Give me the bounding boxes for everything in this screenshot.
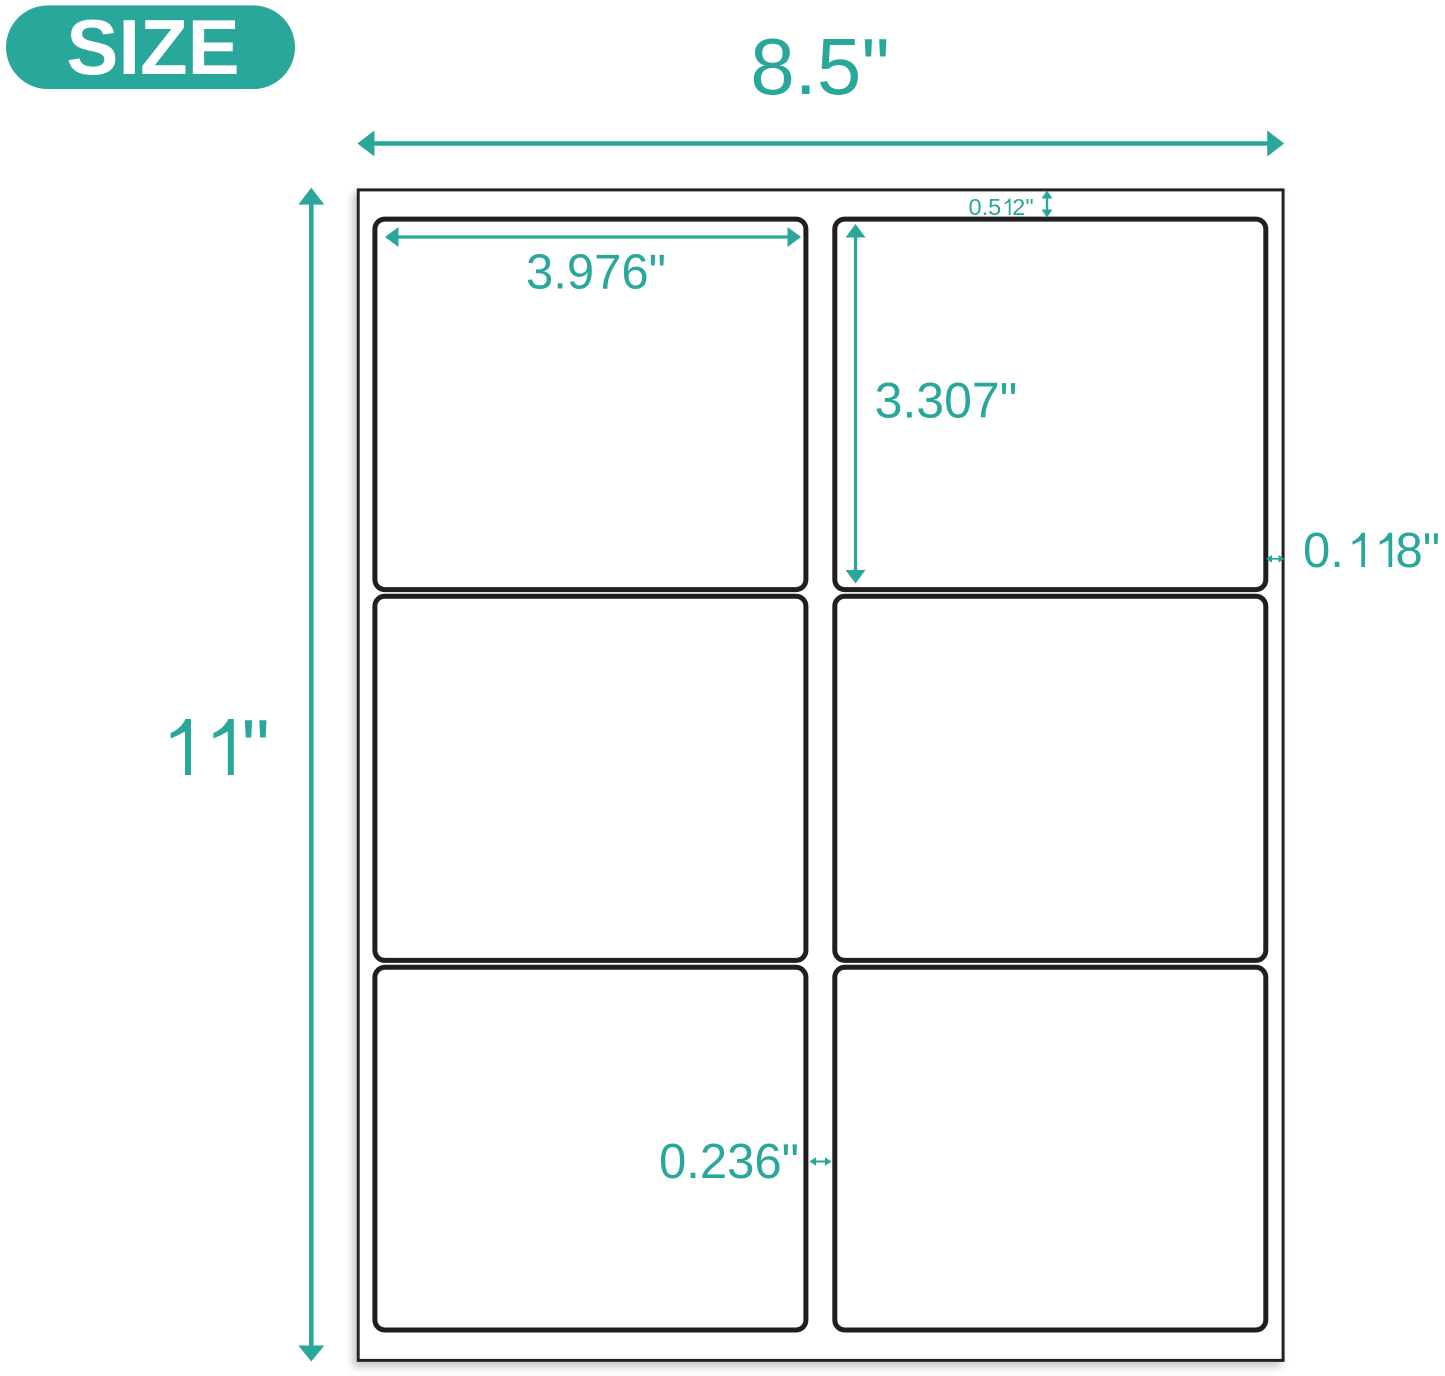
svg-text:0.236": 0.236" xyxy=(659,1135,799,1189)
svg-text:8": 8" xyxy=(1396,524,1441,578)
svg-text:3.976": 3.976" xyxy=(526,246,666,300)
svg-text:8.5": 8.5" xyxy=(750,22,890,111)
svg-text:0.: 0. xyxy=(1303,524,1344,578)
svg-text:3.307": 3.307" xyxy=(875,373,1018,429)
svg-text:2": 2" xyxy=(1012,194,1033,220)
svg-text:": " xyxy=(242,703,270,792)
svg-text:0.5: 0.5 xyxy=(969,194,1002,220)
svg-text:SIZE: SIZE xyxy=(66,3,239,91)
